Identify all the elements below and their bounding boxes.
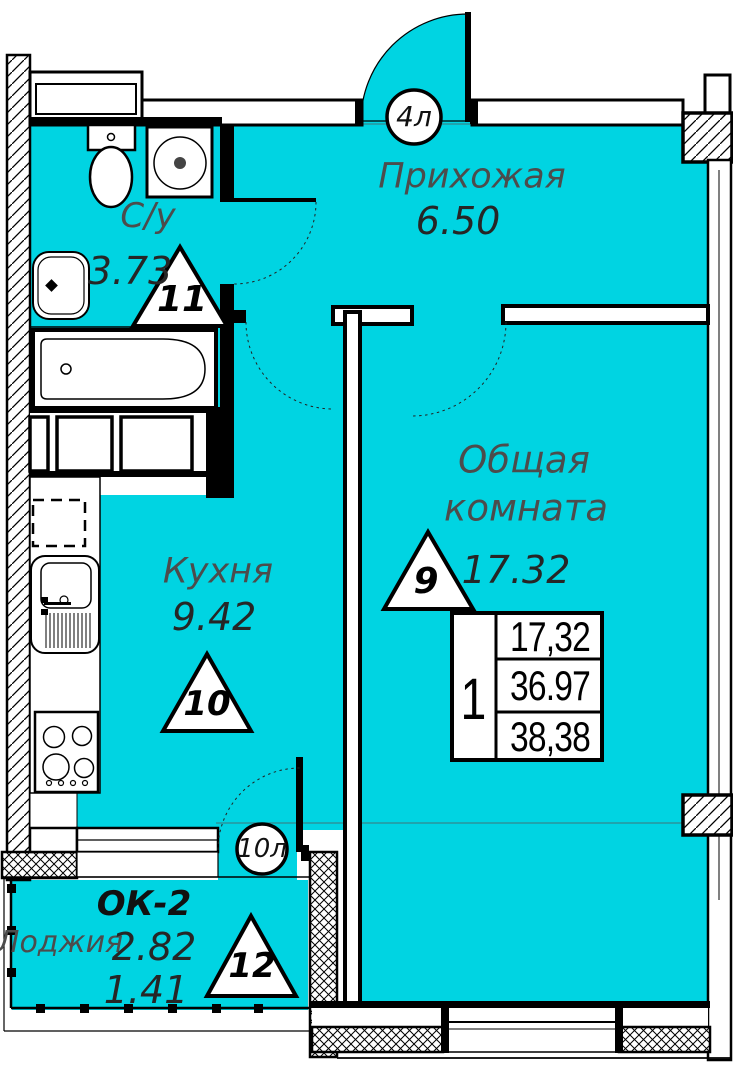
entrance-right-jamb	[470, 101, 478, 124]
top-right-wall-stub	[705, 75, 730, 115]
burner	[44, 727, 65, 748]
railing-post	[7, 884, 16, 893]
loggia-door-number: 10л	[237, 836, 287, 862]
triangle-number-10: 10	[183, 687, 230, 721]
kitchen-window-sill	[77, 852, 218, 877]
bathroom-right-wall-upper	[220, 125, 234, 202]
burner	[43, 754, 69, 780]
living-room-label-line1: Общая	[458, 442, 590, 479]
loggia-wall-left-block	[2, 852, 77, 878]
railing-post	[80, 1004, 89, 1013]
stove	[35, 712, 98, 792]
table-living-area: 17,32	[510, 616, 590, 658]
stove-knob	[59, 781, 64, 786]
kitchen-living-wall	[345, 312, 360, 1004]
duct-band-right-wall	[206, 407, 220, 498]
duct-band-bottom-line	[30, 471, 222, 477]
duct-box-1	[30, 417, 48, 471]
washing-machine-hub	[174, 157, 186, 169]
fridge-dashed	[33, 500, 85, 546]
kitchen-area: 9.42	[172, 598, 257, 636]
stove-knob	[47, 781, 52, 786]
bathroom-label: С/у	[120, 199, 175, 233]
entrance-left-jamb	[355, 101, 363, 124]
bathroom-doorway	[218, 202, 238, 284]
south-window-left-jamb	[441, 1003, 449, 1053]
top-duct-box	[36, 84, 136, 114]
table-area: 36.97	[510, 665, 590, 707]
living-bottom-wall	[310, 1001, 731, 1058]
right-column-top	[683, 113, 732, 162]
railing-post	[36, 1004, 45, 1013]
loggia-door-leaf	[296, 757, 303, 852]
apartment-floor-plan: С/у 3.73 Прихожая 6.50 Кухня 9.42 Общая …	[0, 0, 733, 1067]
living-room-label-line2: комната	[444, 490, 608, 527]
stove-knob	[71, 781, 76, 786]
duct-box-3	[121, 417, 192, 471]
triangle-number-11: 11	[157, 282, 207, 318]
hallway-label: Прихожая	[378, 160, 565, 195]
hallway-area: 6.50	[416, 202, 501, 240]
living-south-wall-line	[310, 1001, 710, 1008]
loggia-area-reduced: 1.41	[104, 971, 189, 1009]
loggia-area-full: 2.82	[112, 928, 197, 966]
burner	[73, 727, 92, 746]
triangle-number-12: 12	[228, 949, 275, 983]
sink-tap-handle-1	[41, 597, 48, 603]
railing-post	[212, 1004, 221, 1013]
sink-tap-bar	[44, 602, 71, 605]
bathroom-door-leaf	[234, 198, 316, 202]
kitchen-fixtures	[30, 477, 100, 793]
loggia-label: Лоджия	[0, 928, 123, 958]
burner	[75, 759, 94, 778]
kitchen-label: Кухня	[163, 555, 273, 590]
hallway-living-wall	[503, 306, 708, 323]
living-room-area: 17.32	[462, 551, 571, 589]
stove-knob	[83, 781, 88, 786]
loggia-wall-white-band	[30, 828, 77, 852]
triangle-number-9: 9	[413, 564, 438, 600]
table-total-area: 38,38	[510, 716, 590, 758]
railing-post	[7, 968, 16, 977]
window-mark-label: ОК-2	[97, 887, 191, 921]
top-wall-right-band	[472, 100, 683, 125]
duct-box-2	[57, 417, 112, 471]
entrance-door-number: 4л	[396, 103, 432, 131]
toilet-button	[108, 134, 115, 141]
living-south-wall-band	[312, 1008, 708, 1027]
left-exterior-wall	[7, 55, 30, 880]
right-column-middle	[683, 795, 732, 835]
south-wall-block-left	[312, 1027, 443, 1052]
bathtub-drain	[61, 364, 71, 374]
south-wall-block-right	[619, 1027, 710, 1052]
railing-post	[254, 1004, 263, 1013]
sink-tap-handle-2	[41, 609, 48, 615]
apartment-number: 1	[460, 671, 485, 729]
south-window-right-jamb	[615, 1003, 623, 1053]
